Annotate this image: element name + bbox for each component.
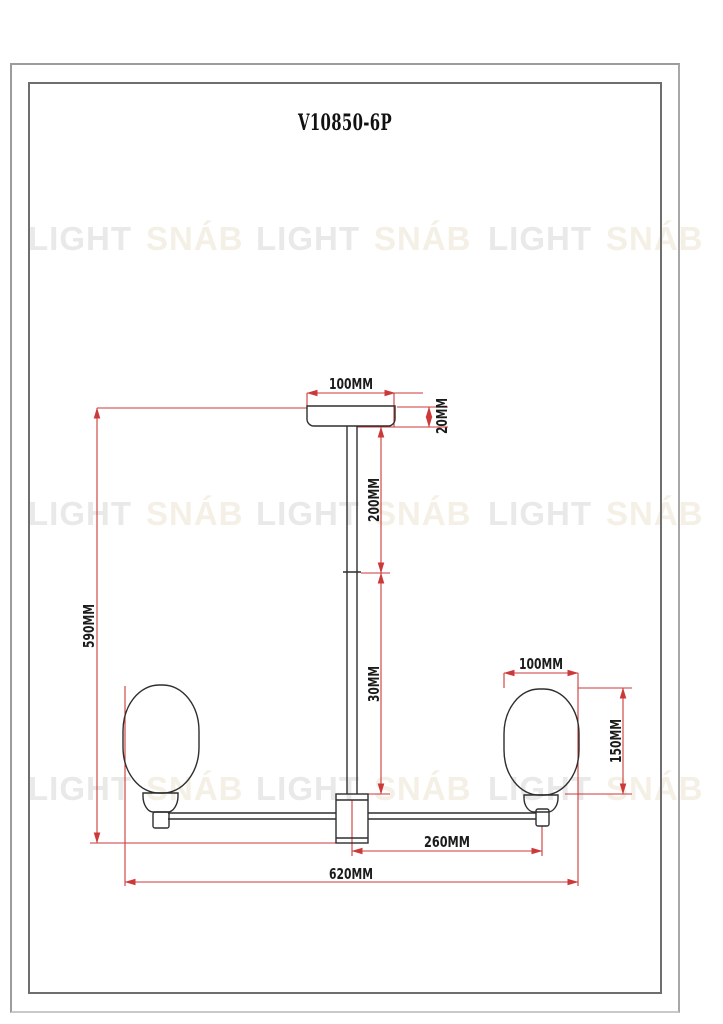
drawing-title: V10850-6P	[297, 110, 392, 136]
label-arm-length: 260MM	[424, 833, 470, 851]
label-canopy-width: 100MM	[329, 375, 373, 393]
label-shade-height: 150MM	[607, 719, 625, 763]
label-total-height: 590MM	[80, 604, 98, 648]
left-lamp-shade	[123, 685, 199, 793]
fixture-outline	[123, 406, 579, 843]
label-total-width: 620MM	[329, 865, 373, 883]
ceiling-canopy	[307, 406, 395, 426]
label-lower-rod: 30MM	[365, 666, 383, 702]
right-lamp-shade	[504, 689, 579, 795]
lamp-dimension-drawing: V10850-6P 100MM 20MM 200MM 30MM 590MM 10…	[0, 0, 723, 1024]
left-lamp-holder	[143, 793, 178, 812]
left-lamp-socket	[153, 812, 169, 828]
label-shade-width: 100MM	[519, 655, 563, 673]
label-canopy-height: 20MM	[433, 398, 451, 434]
label-upper-rod: 200MM	[365, 478, 383, 522]
drawing-page: LIGHTSNÁB LIGHTSNÁB LIGHTSNÁB LIGHTSNÁB …	[0, 0, 723, 1024]
